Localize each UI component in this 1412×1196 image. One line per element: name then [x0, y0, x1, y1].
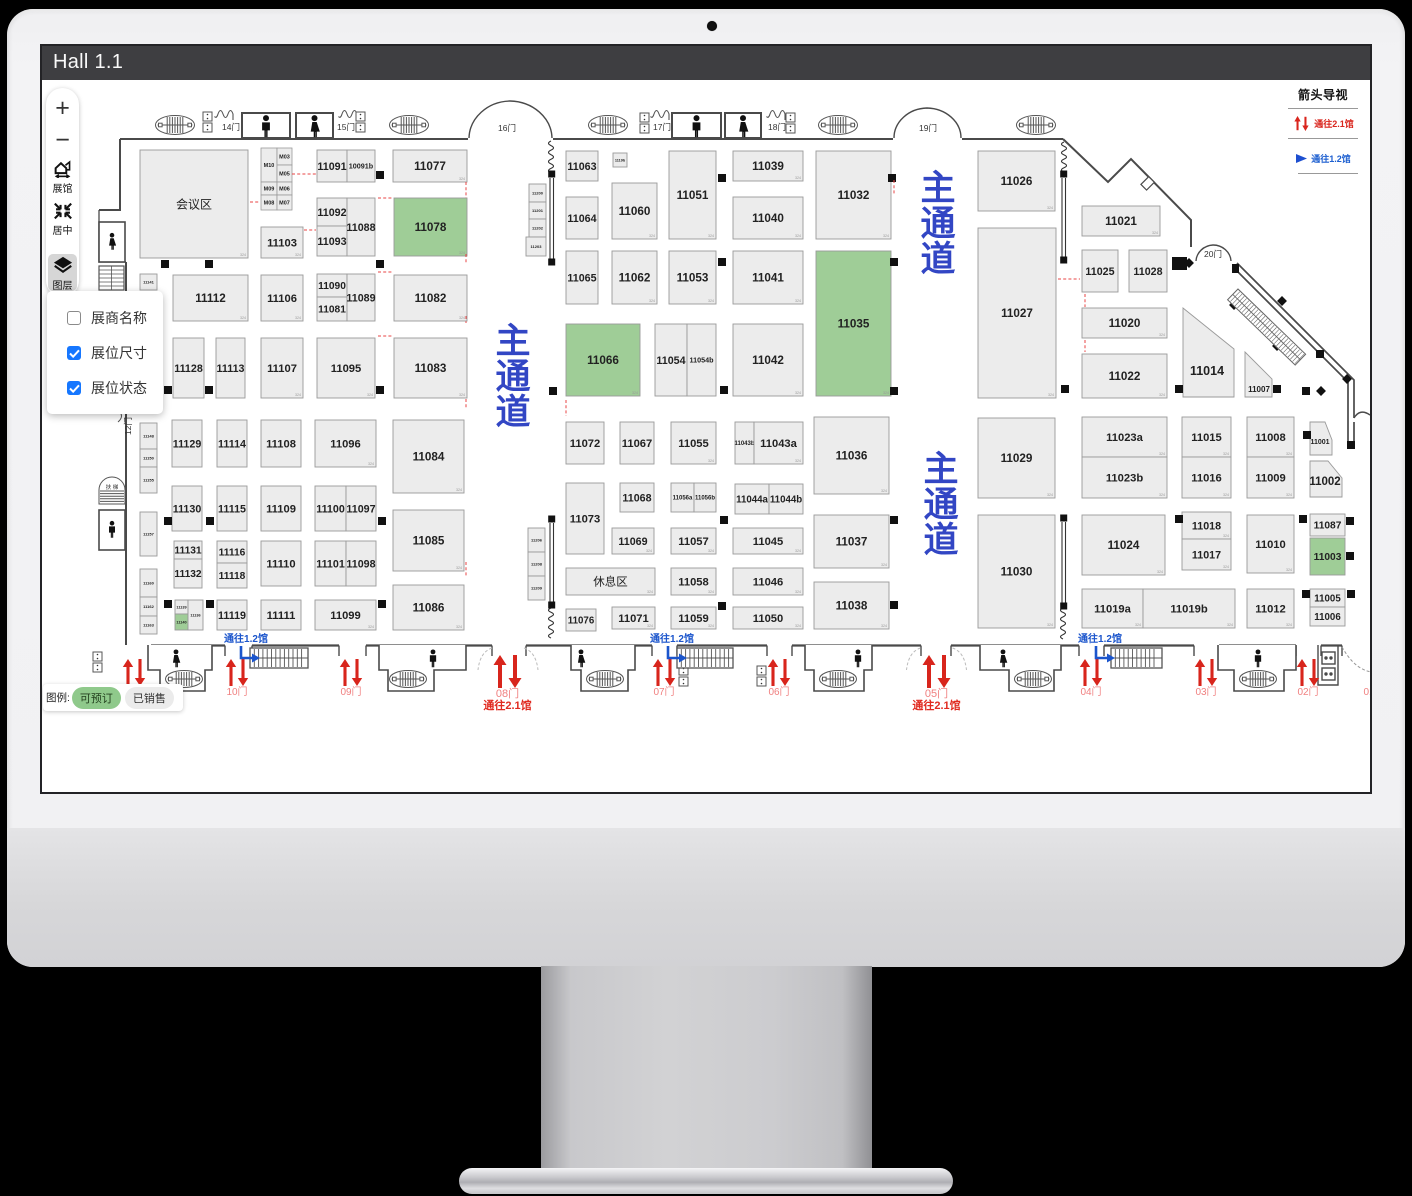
svg-text:11002: 11002 [1309, 476, 1340, 488]
svg-text:11130: 11130 [173, 503, 202, 515]
svg-text:11037: 11037 [836, 536, 868, 549]
svg-text:324: 324 [646, 549, 652, 553]
svg-text:11060: 11060 [619, 205, 651, 218]
svg-text:11019a: 11019a [1094, 604, 1131, 616]
svg-text:11076: 11076 [568, 615, 595, 626]
svg-text:05门: 05门 [925, 686, 948, 700]
svg-text:11043a: 11043a [760, 438, 797, 450]
svg-text:道: 道 [495, 393, 530, 432]
svg-text:11119: 11119 [218, 610, 246, 622]
svg-text:20门: 20门 [1204, 249, 1222, 259]
svg-text:11095: 11095 [331, 363, 362, 375]
svg-text:11098: 11098 [346, 558, 375, 570]
svg-text:01门: 01门 [1363, 685, 1370, 698]
svg-text:11063: 11063 [567, 161, 596, 173]
svg-text:04门: 04门 [1080, 685, 1101, 698]
svg-text:11208: 11208 [531, 561, 543, 566]
svg-text:11082: 11082 [415, 292, 447, 305]
svg-text:324: 324 [1047, 493, 1053, 497]
svg-text:324: 324 [1227, 623, 1233, 627]
svg-text:324: 324 [708, 459, 714, 463]
svg-text:324: 324 [456, 625, 462, 629]
svg-text:11096: 11096 [330, 439, 361, 451]
svg-text:14门: 14门 [222, 122, 240, 132]
svg-text:M05: M05 [279, 171, 290, 177]
svg-text:11003: 11003 [1314, 552, 1342, 563]
svg-text:11012: 11012 [1255, 604, 1286, 616]
svg-text:11100: 11100 [316, 503, 345, 515]
svg-text:11091: 11091 [317, 161, 346, 173]
svg-text:324: 324 [795, 624, 801, 628]
svg-text:11057: 11057 [678, 536, 709, 548]
svg-text:324: 324 [1223, 565, 1229, 569]
svg-text:11162: 11162 [143, 604, 154, 609]
svg-text:324: 324 [795, 299, 801, 303]
svg-text:11069: 11069 [618, 536, 647, 548]
svg-text:11108: 11108 [266, 439, 296, 451]
svg-text:11050: 11050 [753, 613, 784, 625]
svg-text:11007: 11007 [1248, 385, 1270, 394]
svg-text:11209: 11209 [531, 585, 543, 590]
svg-text:11054b: 11054b [690, 356, 715, 365]
svg-text:11040: 11040 [752, 212, 784, 225]
svg-text:324: 324 [632, 391, 638, 395]
svg-text:11085: 11085 [413, 535, 445, 548]
svg-text:11071: 11071 [618, 613, 649, 625]
svg-text:11116: 11116 [219, 548, 246, 559]
svg-text:11045: 11045 [753, 536, 784, 548]
svg-text:11014: 11014 [1190, 364, 1224, 378]
svg-text:16门: 16门 [498, 123, 516, 133]
svg-text:11035: 11035 [838, 318, 870, 331]
svg-text:11036: 11036 [836, 450, 868, 463]
svg-text:324: 324 [1223, 534, 1229, 538]
svg-text:324: 324 [1223, 452, 1229, 456]
svg-text:324: 324 [708, 624, 714, 628]
svg-text:11056b: 11056b [695, 496, 715, 502]
svg-text:324: 324 [708, 549, 714, 553]
svg-text:19门: 19门 [919, 123, 937, 133]
svg-text:11078: 11078 [415, 221, 447, 234]
svg-text:11023a: 11023a [1106, 432, 1143, 444]
svg-text:11016: 11016 [1191, 473, 1222, 485]
svg-text:324: 324 [708, 590, 714, 594]
svg-text:11055: 11055 [678, 438, 709, 450]
svg-text:主: 主 [920, 169, 955, 208]
svg-text:11139: 11139 [176, 605, 186, 609]
svg-text:17门: 17门 [653, 122, 671, 132]
svg-text:324: 324 [367, 393, 373, 397]
svg-text:主: 主 [495, 322, 530, 361]
svg-text:11053: 11053 [677, 272, 709, 285]
svg-text:11001: 11001 [1310, 439, 1329, 446]
svg-text:11103: 11103 [267, 238, 297, 250]
svg-text:324: 324 [1286, 568, 1292, 572]
svg-text:11021: 11021 [1105, 215, 1137, 228]
svg-text:11099: 11099 [330, 610, 361, 622]
svg-text:11136: 11136 [190, 613, 200, 617]
svg-text:11110: 11110 [266, 559, 295, 571]
svg-text:11024: 11024 [1108, 539, 1140, 552]
svg-text:通: 通 [495, 358, 530, 397]
svg-text:通: 通 [923, 486, 958, 525]
svg-text:M07: M07 [279, 200, 290, 206]
svg-text:08门: 08门 [496, 686, 519, 700]
svg-text:324: 324 [1152, 231, 1158, 235]
svg-text:11046: 11046 [753, 577, 784, 589]
svg-text:07门: 07门 [653, 685, 674, 698]
svg-text:通往1.2馆: 通往1.2馆 [650, 632, 694, 645]
svg-text:10091b: 10091b [349, 162, 374, 171]
svg-text:324: 324 [459, 177, 465, 181]
svg-text:11155: 11155 [143, 477, 154, 482]
svg-text:11017: 11017 [1192, 549, 1221, 561]
svg-text:324: 324 [240, 316, 246, 320]
svg-text:11118: 11118 [219, 571, 246, 582]
svg-text:通往2.1馆: 通往2.1馆 [912, 698, 960, 712]
svg-text:324: 324 [1286, 493, 1292, 497]
svg-text:会议区: 会议区 [176, 197, 212, 211]
svg-text:02门: 02门 [1297, 685, 1318, 698]
svg-text:扶 梯: 扶 梯 [106, 483, 119, 491]
svg-text:324: 324 [1048, 393, 1054, 397]
svg-text:324: 324 [1159, 493, 1165, 497]
svg-text:324: 324 [240, 253, 246, 257]
svg-text:M03: M03 [279, 154, 290, 160]
svg-text:11083: 11083 [415, 362, 447, 375]
svg-text:11027: 11027 [1001, 307, 1033, 320]
svg-text:11043b: 11043b [734, 441, 754, 447]
svg-text:324: 324 [1159, 452, 1165, 456]
svg-text:11032: 11032 [838, 189, 870, 202]
svg-text:11025: 11025 [1085, 266, 1114, 278]
svg-text:03门: 03门 [1195, 685, 1216, 698]
svg-text:11206: 11206 [531, 537, 543, 542]
svg-text:道: 道 [923, 521, 958, 560]
svg-text:324: 324 [368, 462, 374, 466]
svg-text:12门: 12门 [123, 417, 133, 435]
svg-text:11008: 11008 [1255, 432, 1286, 444]
svg-text:11054: 11054 [656, 355, 685, 367]
svg-text:11009: 11009 [1255, 473, 1286, 485]
svg-text:11044a: 11044a [736, 494, 768, 505]
svg-text:11030: 11030 [1001, 566, 1033, 579]
svg-text:11132: 11132 [174, 569, 202, 580]
svg-text:324: 324 [1159, 393, 1165, 397]
svg-text:324: 324 [456, 566, 462, 570]
svg-text:324: 324 [647, 624, 653, 628]
svg-text:11111: 11111 [267, 610, 296, 622]
svg-text:11201: 11201 [532, 208, 544, 213]
svg-text:11087: 11087 [1314, 521, 1342, 532]
svg-text:11084: 11084 [413, 451, 445, 464]
svg-text:11068: 11068 [622, 492, 651, 504]
svg-text:通往2.1馆: 通往2.1馆 [483, 698, 531, 712]
svg-text:324: 324 [649, 234, 655, 238]
svg-text:11066: 11066 [587, 354, 619, 367]
svg-text:11019b: 11019b [1170, 604, 1207, 616]
svg-text:11203: 11203 [531, 244, 543, 249]
svg-text:通往1.2馆: 通往1.2馆 [1078, 632, 1122, 645]
svg-text:11062: 11062 [619, 272, 651, 285]
svg-text:11073: 11073 [570, 514, 601, 526]
svg-text:11200: 11200 [532, 190, 544, 195]
svg-text:11114: 11114 [218, 438, 246, 450]
svg-text:11072: 11072 [570, 438, 601, 450]
svg-text:11089: 11089 [346, 292, 375, 304]
svg-text:11067: 11067 [622, 438, 653, 450]
svg-text:11109: 11109 [266, 504, 296, 516]
svg-text:11023b: 11023b [1106, 473, 1143, 485]
svg-text:11150: 11150 [143, 455, 154, 460]
svg-text:11059: 11059 [678, 613, 709, 625]
svg-text:10门: 10门 [226, 685, 247, 698]
svg-text:休息区: 休息区 [593, 575, 628, 589]
svg-text:15门: 15门 [337, 122, 355, 132]
svg-text:M09: M09 [264, 186, 275, 192]
svg-text:11056a: 11056a [673, 496, 693, 502]
svg-text:324: 324 [883, 234, 889, 238]
svg-text:11093: 11093 [317, 236, 346, 248]
svg-text:11058: 11058 [678, 577, 709, 589]
svg-text:324: 324 [647, 590, 653, 594]
svg-text:11141: 11141 [143, 279, 154, 284]
svg-text:324: 324 [295, 253, 301, 257]
svg-text:324: 324 [1047, 623, 1053, 627]
svg-text:11128: 11128 [174, 363, 203, 375]
svg-text:324: 324 [795, 234, 801, 238]
svg-text:324: 324 [1286, 623, 1292, 627]
svg-text:11131: 11131 [174, 546, 202, 557]
svg-text:道: 道 [920, 240, 955, 279]
svg-text:11086: 11086 [413, 602, 445, 615]
svg-text:324: 324 [795, 176, 801, 180]
svg-text:324: 324 [456, 488, 462, 492]
svg-text:M08: M08 [264, 200, 275, 206]
svg-text:11029: 11029 [1001, 452, 1033, 465]
svg-text:主: 主 [923, 450, 958, 489]
svg-text:11042: 11042 [752, 354, 784, 367]
svg-text:324: 324 [368, 625, 374, 629]
svg-text:324: 324 [459, 251, 465, 255]
svg-text:11064: 11064 [567, 213, 596, 225]
svg-text:11112: 11112 [195, 292, 226, 305]
svg-text:11090: 11090 [318, 281, 346, 292]
svg-text:18门: 18门 [768, 122, 786, 132]
svg-text:11202: 11202 [532, 225, 544, 230]
svg-text:11107: 11107 [267, 363, 297, 375]
svg-text:06门: 06门 [768, 685, 789, 698]
svg-text:11026: 11026 [1001, 175, 1033, 188]
svg-text:324: 324 [881, 489, 887, 493]
svg-text:11148: 11148 [143, 433, 154, 438]
svg-text:11065: 11065 [567, 272, 596, 284]
svg-text:09门: 09门 [340, 685, 361, 698]
svg-text:M06: M06 [279, 186, 290, 192]
svg-text:11163: 11163 [143, 622, 154, 627]
svg-text:11039: 11039 [752, 160, 784, 173]
svg-text:11129: 11129 [173, 438, 202, 450]
svg-text:11113: 11113 [217, 363, 245, 375]
svg-text:11010: 11010 [1255, 539, 1286, 551]
svg-text:324: 324 [881, 563, 887, 567]
svg-text:M10: M10 [264, 163, 275, 169]
svg-text:11157: 11157 [143, 531, 154, 536]
svg-text:324: 324 [1047, 206, 1053, 210]
svg-text:1119b: 1119b [615, 158, 626, 162]
svg-text:324: 324 [883, 391, 889, 395]
svg-text:11006: 11006 [1314, 612, 1341, 623]
svg-text:11077: 11077 [414, 160, 446, 173]
svg-text:11088: 11088 [346, 222, 375, 234]
svg-text:324: 324 [795, 391, 801, 395]
svg-text:324: 324 [459, 316, 465, 320]
svg-text:11097: 11097 [346, 503, 375, 515]
svg-text:324: 324 [795, 590, 801, 594]
svg-text:324: 324 [1159, 333, 1165, 337]
svg-text:324: 324 [1223, 493, 1229, 497]
svg-text:11018: 11018 [1192, 520, 1221, 532]
svg-text:11022: 11022 [1109, 370, 1141, 383]
svg-text:324: 324 [795, 459, 801, 463]
svg-text:11115: 11115 [218, 503, 246, 515]
svg-text:324: 324 [295, 393, 301, 397]
svg-text:通往1.2馆: 通往1.2馆 [224, 632, 268, 645]
svg-text:11140: 11140 [176, 620, 186, 624]
svg-text:11106: 11106 [267, 293, 297, 305]
svg-text:324: 324 [459, 393, 465, 397]
svg-text:324: 324 [649, 299, 655, 303]
svg-text:11041: 11041 [752, 272, 784, 285]
svg-text:11015: 11015 [1191, 432, 1222, 444]
svg-text:324: 324 [1157, 570, 1163, 574]
svg-text:11092: 11092 [317, 207, 346, 219]
svg-text:324: 324 [795, 549, 801, 553]
svg-text:324: 324 [1135, 623, 1141, 627]
svg-text:11081: 11081 [318, 305, 346, 316]
svg-text:通: 通 [920, 205, 955, 244]
svg-text:11005: 11005 [1314, 593, 1341, 604]
svg-text:324: 324 [295, 316, 301, 320]
svg-text:11044b: 11044b [770, 494, 802, 505]
svg-text:324: 324 [881, 624, 887, 628]
svg-text:11101: 11101 [316, 558, 345, 570]
svg-text:11020: 11020 [1109, 317, 1141, 330]
svg-text:324: 324 [708, 299, 714, 303]
svg-text:11028: 11028 [1133, 266, 1162, 278]
svg-text:324: 324 [708, 234, 714, 238]
svg-text:11038: 11038 [836, 600, 868, 613]
svg-text:11051: 11051 [677, 189, 709, 202]
svg-text:11160: 11160 [143, 580, 154, 585]
svg-text:324: 324 [1286, 452, 1292, 456]
